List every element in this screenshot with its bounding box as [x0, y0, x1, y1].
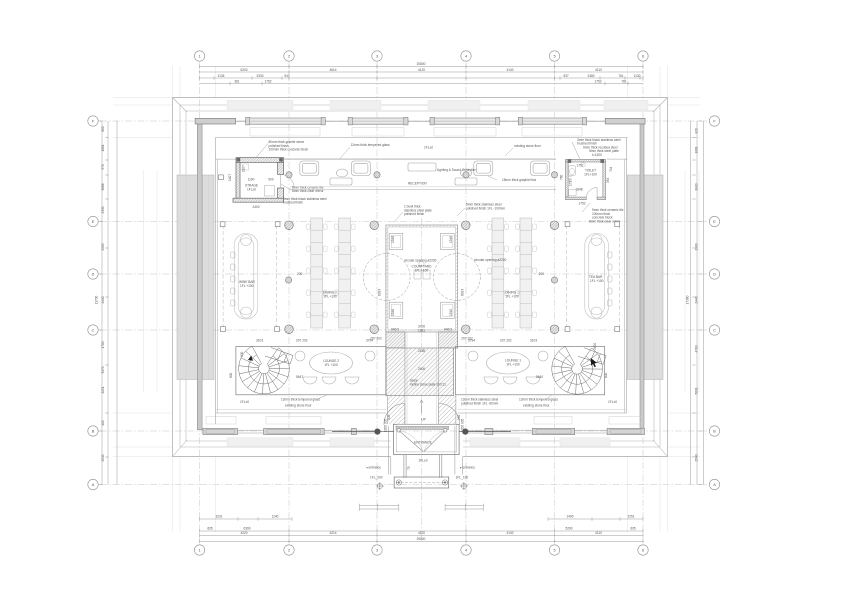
svg-text:1546: 1546 [449, 236, 453, 243]
svg-text:605: 605 [207, 527, 213, 531]
svg-text:1200 905: 1200 905 [384, 418, 388, 432]
svg-text:200: 200 [539, 272, 545, 276]
svg-text:1546: 1546 [391, 236, 395, 243]
svg-text:5001: 5001 [695, 387, 699, 394]
svg-text:1140: 1140 [272, 515, 279, 519]
svg-text:937: 937 [563, 74, 569, 78]
svg-text:C: C [713, 329, 716, 333]
svg-text:C: C [92, 329, 95, 333]
svg-text:Lighting & Sound Controller: Lighting & Sound Controller [437, 168, 477, 172]
svg-text:brushed finish: brushed finish [283, 201, 303, 205]
svg-text:1981: 1981 [418, 328, 425, 332]
svg-text:1700: 1700 [101, 341, 105, 348]
svg-text:2406: 2406 [418, 367, 425, 371]
svg-text:905: 905 [387, 414, 391, 420]
svg-text:5647: 5647 [296, 375, 303, 379]
svg-text:1FL±0: 1FL±0 [418, 459, 427, 463]
svg-text:1757: 1757 [576, 164, 583, 168]
svg-text:4110: 4110 [595, 68, 602, 72]
svg-text:6: 6 [642, 549, 644, 553]
svg-text:1752: 1752 [264, 79, 271, 83]
svg-text:100mm thick concrete block: 100mm thick concrete block [269, 148, 309, 152]
svg-text:ENTRANCE: ENTRANCE [414, 441, 432, 445]
svg-text:A: A [713, 483, 716, 487]
svg-text:4120: 4120 [418, 68, 425, 72]
svg-text:75: 75 [407, 466, 411, 470]
svg-text:4: 4 [465, 55, 467, 59]
svg-text:D: D [713, 273, 716, 277]
svg-text:570: 570 [101, 164, 105, 170]
svg-text:761: 761 [618, 74, 624, 78]
svg-text:4614: 4614 [329, 68, 336, 72]
svg-text:781: 781 [621, 79, 627, 83]
svg-text:1: 1 [199, 55, 201, 59]
svg-text:2540: 2540 [695, 454, 699, 461]
svg-text:E: E [92, 220, 95, 224]
svg-text:3231: 3231 [215, 515, 222, 519]
svg-text:◂ entrance: ◂ entrance [366, 466, 381, 470]
svg-text:1546: 1546 [391, 309, 395, 316]
svg-text:1752: 1752 [594, 79, 601, 83]
svg-text:4700: 4700 [695, 345, 699, 352]
svg-text:1FL +100: 1FL +100 [324, 363, 338, 367]
svg-text:existing stone floor: existing stone floor [523, 403, 551, 407]
svg-text:5: 5 [553, 549, 555, 553]
svg-text:3400: 3400 [593, 343, 597, 350]
svg-text:600: 600 [604, 372, 608, 378]
svg-text:3794: 3794 [366, 339, 373, 343]
svg-text:existing stone floor: existing stone floor [285, 403, 313, 407]
svg-text:207 202: 207 202 [296, 339, 308, 343]
svg-text:2440: 2440 [695, 296, 699, 303]
svg-text:UP: UP [421, 418, 425, 422]
svg-text:A: A [92, 483, 95, 487]
svg-text:1200 905: 1200 905 [461, 418, 465, 432]
svg-text:3794: 3794 [468, 339, 475, 343]
svg-text:15mm thick graphiel tick: 15mm thick graphiel tick [502, 178, 537, 182]
svg-text:1752: 1752 [578, 202, 585, 206]
svg-text:▸ entrance: ▸ entrance [460, 466, 475, 470]
svg-text:1717: 1717 [569, 179, 573, 186]
svg-text:3686: 3686 [101, 183, 105, 190]
svg-text:1FL +100: 1FL +100 [240, 284, 254, 288]
svg-text:D: D [92, 273, 95, 277]
svg-text:2330: 2330 [101, 206, 105, 213]
svg-text:polished finish 1FL -60mm: polished finish 1FL -60mm [461, 401, 499, 405]
svg-text:4220: 4220 [240, 531, 247, 535]
svg-text:1081: 1081 [695, 146, 699, 153]
svg-text:2503: 2503 [101, 243, 105, 250]
svg-text:17360: 17360 [686, 295, 690, 304]
svg-text:2900: 2900 [695, 243, 699, 250]
svg-text:3: 3 [376, 55, 378, 59]
svg-text:20800: 20800 [417, 537, 426, 541]
svg-text:1FL±0: 1FL±0 [240, 400, 249, 404]
svg-text:E: E [713, 220, 716, 224]
svg-text:1130: 1130 [634, 74, 641, 78]
svg-text:920: 920 [695, 128, 699, 134]
svg-text:12mm thick tempered glass: 12mm thick tempered glass [351, 143, 390, 147]
svg-text:1135: 1135 [218, 74, 225, 78]
svg-text:1FL +100: 1FL +100 [506, 362, 520, 366]
svg-text:4: 4 [465, 549, 467, 553]
svg-text:1FL±0: 1FL±0 [247, 187, 256, 191]
svg-text:B: B [92, 430, 95, 434]
svg-text:3103: 3103 [530, 339, 537, 343]
svg-text:1407: 1407 [228, 174, 232, 181]
svg-text:20800: 20800 [417, 62, 426, 66]
svg-text:760: 760 [560, 174, 564, 180]
svg-text:8mm thick clear mirror: 8mm thick clear mirror [292, 189, 324, 193]
svg-text:1FL +100: 1FL +100 [590, 279, 604, 283]
svg-text:1848: 1848 [575, 188, 582, 192]
svg-text:1FL_100: 1FL_100 [456, 476, 469, 480]
svg-text:2: 2 [288, 549, 290, 553]
svg-text:B: B [713, 430, 716, 434]
svg-text:6200: 6200 [240, 68, 247, 72]
svg-text:600: 600 [229, 372, 233, 378]
svg-text:polished finish 1FL -100mm: polished finish 1FL -100mm [466, 206, 505, 210]
svg-text:2251: 2251 [627, 515, 634, 519]
svg-text:1490: 1490 [566, 515, 573, 519]
svg-text:1: 1 [199, 549, 201, 553]
svg-text:744: 744 [609, 166, 613, 172]
svg-text:12mm thick tempered glass: 12mm thick tempered glass [281, 398, 320, 402]
svg-text:2: 2 [288, 55, 290, 59]
svg-text:circular opening ø2200: circular opening ø2200 [404, 259, 437, 263]
svg-text:1FL±0: 1FL±0 [424, 146, 433, 150]
svg-text:5290: 5290 [565, 527, 572, 531]
svg-text:4110: 4110 [595, 531, 602, 535]
svg-text:2251: 2251 [101, 386, 105, 393]
svg-text:existing stone floor: existing stone floor [514, 144, 542, 148]
svg-text:4140: 4140 [506, 68, 513, 72]
svg-text:3103: 3103 [256, 339, 263, 343]
svg-text:polished finish: polished finish [404, 212, 424, 216]
svg-text:1FL +100: 1FL +100 [323, 294, 337, 298]
svg-text:1540: 1540 [449, 309, 453, 316]
svg-text:1107: 1107 [242, 165, 246, 172]
svg-text:1FL_100: 1FL_100 [370, 476, 383, 480]
svg-text:1061: 1061 [101, 144, 105, 151]
svg-text:3: 3 [376, 549, 378, 553]
svg-text:2400: 2400 [252, 205, 259, 209]
svg-text:2540: 2540 [101, 454, 105, 461]
svg-text:12mm thick tempered glass: 12mm thick tempered glass [519, 398, 558, 402]
svg-text:361: 361 [234, 79, 240, 83]
svg-text:RECEPTION: RECEPTION [408, 181, 427, 185]
svg-text:11700: 11700 [95, 295, 99, 304]
svg-text:900: 900 [268, 178, 274, 182]
svg-text:circular opening ø2200: circular opening ø2200 [474, 258, 507, 262]
svg-text:6: 6 [642, 55, 644, 59]
svg-text:946/3: 946/3 [391, 327, 399, 331]
svg-text:5640: 5640 [536, 375, 543, 379]
svg-text:5: 5 [553, 55, 555, 59]
svg-text:947: 947 [284, 74, 290, 78]
svg-text:207 202: 207 202 [500, 339, 512, 343]
svg-text:200: 200 [297, 272, 303, 276]
svg-text:4214: 4214 [329, 531, 336, 535]
svg-text:3470: 3470 [101, 366, 105, 373]
svg-text:605: 605 [630, 527, 636, 531]
svg-text:4440: 4440 [101, 296, 105, 303]
svg-text:800: 800 [101, 126, 105, 132]
svg-text:incline stone plate 100:11: incline stone plate 100:11 [410, 382, 446, 386]
svg-text:354: 354 [606, 177, 610, 183]
svg-text:4140: 4140 [506, 531, 513, 535]
svg-text:2480: 2480 [587, 74, 594, 78]
svg-text:6093: 6093 [461, 289, 465, 296]
svg-text:1FL±0: 1FL±0 [608, 400, 617, 404]
svg-text:t=1300: t=1300 [592, 153, 602, 157]
svg-text:1FL +100: 1FL +100 [505, 294, 519, 298]
svg-text:3900: 3900 [695, 183, 699, 190]
svg-text:2438: 2438 [418, 349, 425, 353]
svg-text:3330: 3330 [256, 74, 263, 78]
svg-text:6093: 6093 [378, 289, 382, 296]
svg-text:1FL+100: 1FL+100 [584, 172, 597, 176]
svg-text:946/3: 946/3 [444, 327, 452, 331]
svg-text:1100: 1100 [248, 178, 255, 182]
svg-text:402: 402 [101, 420, 105, 426]
svg-text:4120: 4120 [418, 531, 425, 535]
svg-text:1FL +100: 1FL +100 [415, 268, 429, 272]
